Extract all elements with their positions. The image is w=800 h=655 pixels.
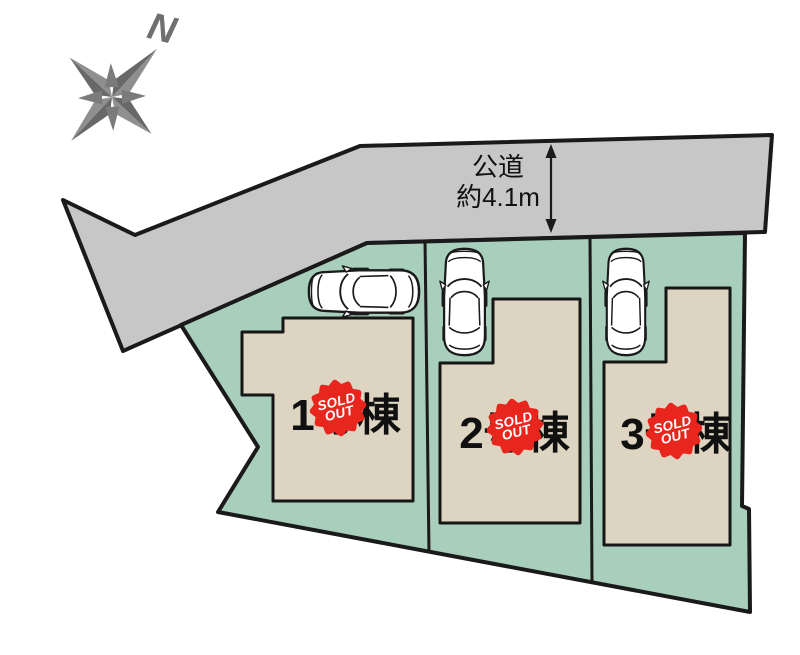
sold-out-badge-lot3: SOLD OUT — [644, 401, 704, 461]
sold-out-badge-lot1: SOLD OUT — [308, 378, 368, 438]
plot-layout-diagram: N 公道 約4.1m 1号棟 2号棟 3号棟 SOLD OUT SOLD OUT… — [0, 0, 800, 655]
badge-text: SOLD OUT — [638, 395, 711, 468]
road-name: 公道 — [438, 152, 558, 182]
car-icon-lot2 — [440, 249, 489, 355]
map-canvas — [0, 0, 800, 655]
badge-text: SOLD OUT — [479, 391, 552, 464]
road-label: 公道 約4.1m — [438, 152, 558, 212]
car-icon-lot1 — [309, 266, 419, 317]
lot-divider-2-3 — [590, 236, 592, 583]
sold-out-badge-lot2: SOLD OUT — [485, 397, 545, 457]
car-icon-lot3 — [603, 249, 649, 355]
road-width: 約4.1m — [438, 182, 558, 212]
badge-text: SOLD OUT — [302, 372, 375, 445]
